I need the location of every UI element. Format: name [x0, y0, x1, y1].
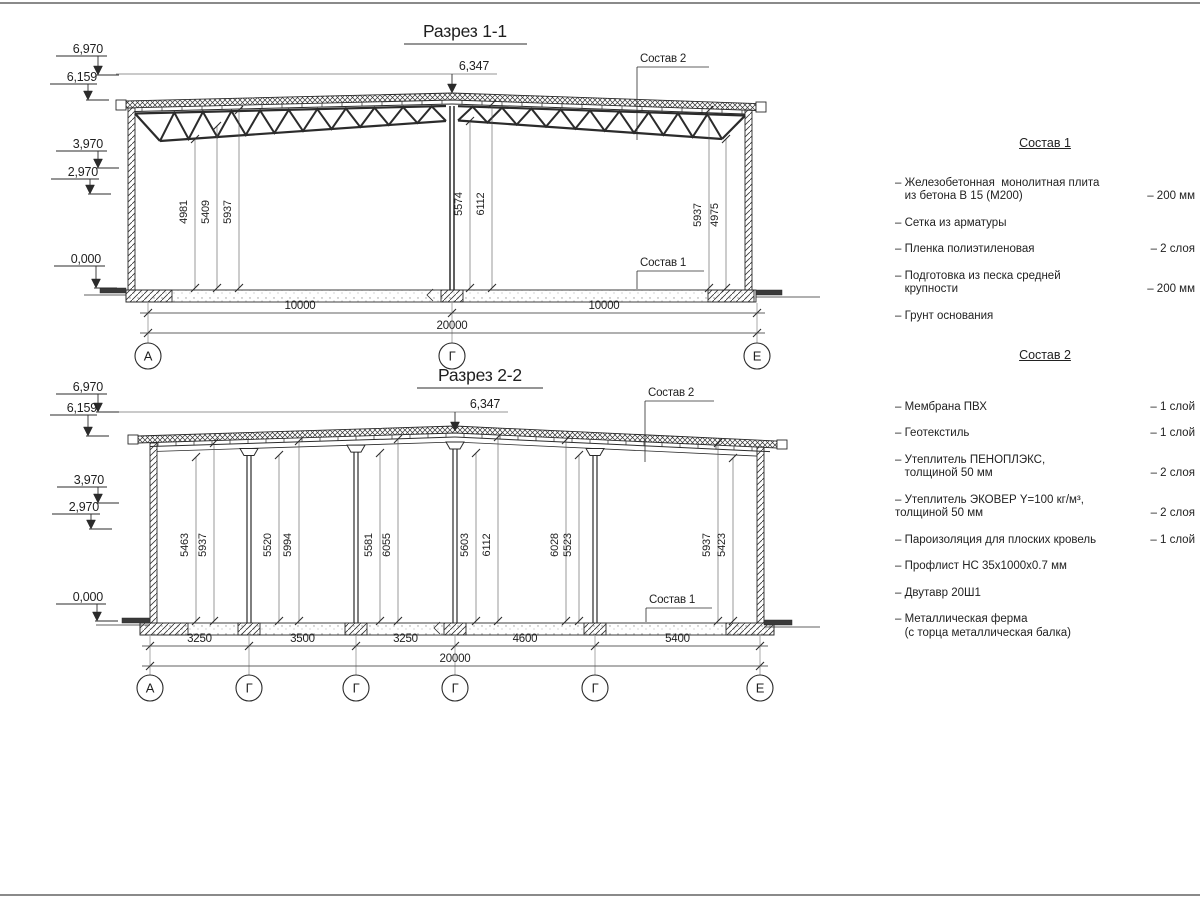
dimension-label: 5937 — [197, 533, 209, 557]
dimension-label: 6112 — [481, 533, 493, 556]
elevation-label: 0,000 — [71, 252, 102, 266]
elevation-label: 6,159 — [67, 401, 98, 415]
dimension-label: 5423 — [716, 533, 728, 557]
elevation-label: 2,970 — [69, 500, 100, 514]
axis-label: Е — [756, 681, 765, 696]
dimension-label: 6,347 — [470, 397, 501, 411]
axis-label: Е — [753, 349, 762, 364]
section-title: Разрез 1-1 — [423, 21, 507, 41]
axis-label: Г — [246, 681, 253, 696]
dimension-label: 5994 — [282, 533, 294, 557]
elevation-label: 6,970 — [73, 380, 104, 394]
dimension-label: 4975 — [709, 203, 721, 227]
dimension-label: 5937 — [692, 203, 704, 227]
elevation-label: 2,970 — [68, 165, 99, 179]
elevation-label: 3,970 — [74, 473, 105, 487]
dimension-label: 5463 — [179, 533, 191, 557]
material-item: – Утеплитель ПЕНОПЛЭКС, толщиной 50 мм– … — [895, 454, 1195, 481]
dimension-label: 5520 — [262, 533, 274, 557]
elevation-label: 0,000 — [73, 590, 104, 604]
dimension-label: 5937 — [222, 200, 234, 224]
dimension-label: 5523 — [562, 533, 574, 557]
material-item: – Грунт основания — [895, 310, 1195, 324]
dimension-label: 3250 — [187, 633, 212, 645]
dimension-label: 5400 — [665, 633, 690, 645]
axis-label: А — [146, 681, 155, 696]
axis-label: Г — [353, 681, 360, 696]
dimension-label: 3500 — [290, 633, 315, 645]
material-item: – Сетка из арматуры — [895, 217, 1195, 231]
material-list-sostav-2: Состав 2 – Мембрана ПВХ– 1 слой – Геотек… — [895, 349, 1195, 653]
dimension-label: 6028 — [549, 533, 561, 557]
material-list-title: Состав 2 — [895, 349, 1195, 363]
dimension-label: 5574 — [453, 192, 465, 216]
material-item: – Профлист НС 35х1000х0.7 мм — [895, 560, 1195, 574]
material-item: – Мембрана ПВХ– 1 слой — [895, 401, 1195, 415]
material-item: – Подготовка из песка средней крупности–… — [895, 270, 1195, 297]
elevation-label: 3,970 — [73, 137, 104, 151]
section-title: Разрез 2-2 — [438, 365, 522, 385]
dimension-label: 4600 — [513, 633, 538, 645]
dimension-label: 4981 — [178, 200, 190, 224]
material-item: – Двутавр 20Ш1 — [895, 587, 1195, 601]
drawing-sheet: Разрез 1-16,9706,1593,9702,9700,0006,347… — [0, 0, 1200, 900]
dimension-label: 6,347 — [459, 59, 490, 73]
dimension-label: 6055 — [381, 533, 393, 557]
axis-label: Г — [449, 349, 456, 364]
material-list-title: Состав 1 — [895, 137, 1195, 151]
axis-label: Г — [452, 681, 459, 696]
dimension-label: 10000 — [285, 300, 316, 312]
material-item: – Утеплитель ЭКОВЕР Y=100 кг/м³, толщино… — [895, 494, 1195, 521]
elevation-label: 6,970 — [73, 42, 104, 56]
material-item: – Пленка полиэтиленовая– 2 слоя — [895, 243, 1195, 257]
dimension-label: 5937 — [701, 533, 713, 557]
dimension-label: 5581 — [363, 533, 375, 557]
dimension-label: 10000 — [589, 300, 620, 312]
material-item: – Пароизоляция для плоских кровель– 1 сл… — [895, 534, 1195, 548]
callout-label: Состав 2 — [640, 53, 686, 65]
material-item: – Железобетонная монолитная плита из бет… — [895, 177, 1195, 204]
axis-label: Г — [592, 681, 599, 696]
dimension-label: 6112 — [475, 192, 487, 215]
dimension-label: 5603 — [459, 533, 471, 557]
callout-label: Состав 1 — [640, 257, 686, 269]
material-list-sostav-1: Состав 1 – Железобетонная монолитная пли… — [895, 137, 1195, 336]
elevation-label: 6,159 — [67, 70, 98, 84]
material-item: – Геотекстиль– 1 слой — [895, 427, 1195, 441]
material-item: – Металлическая ферма (с торца металличе… — [895, 613, 1195, 640]
dimension-label: 3250 — [393, 633, 418, 645]
callout-label: Состав 1 — [649, 594, 695, 606]
axis-label: А — [144, 349, 153, 364]
dimension-label: 5409 — [200, 200, 212, 224]
callout-label: Состав 2 — [648, 387, 694, 399]
